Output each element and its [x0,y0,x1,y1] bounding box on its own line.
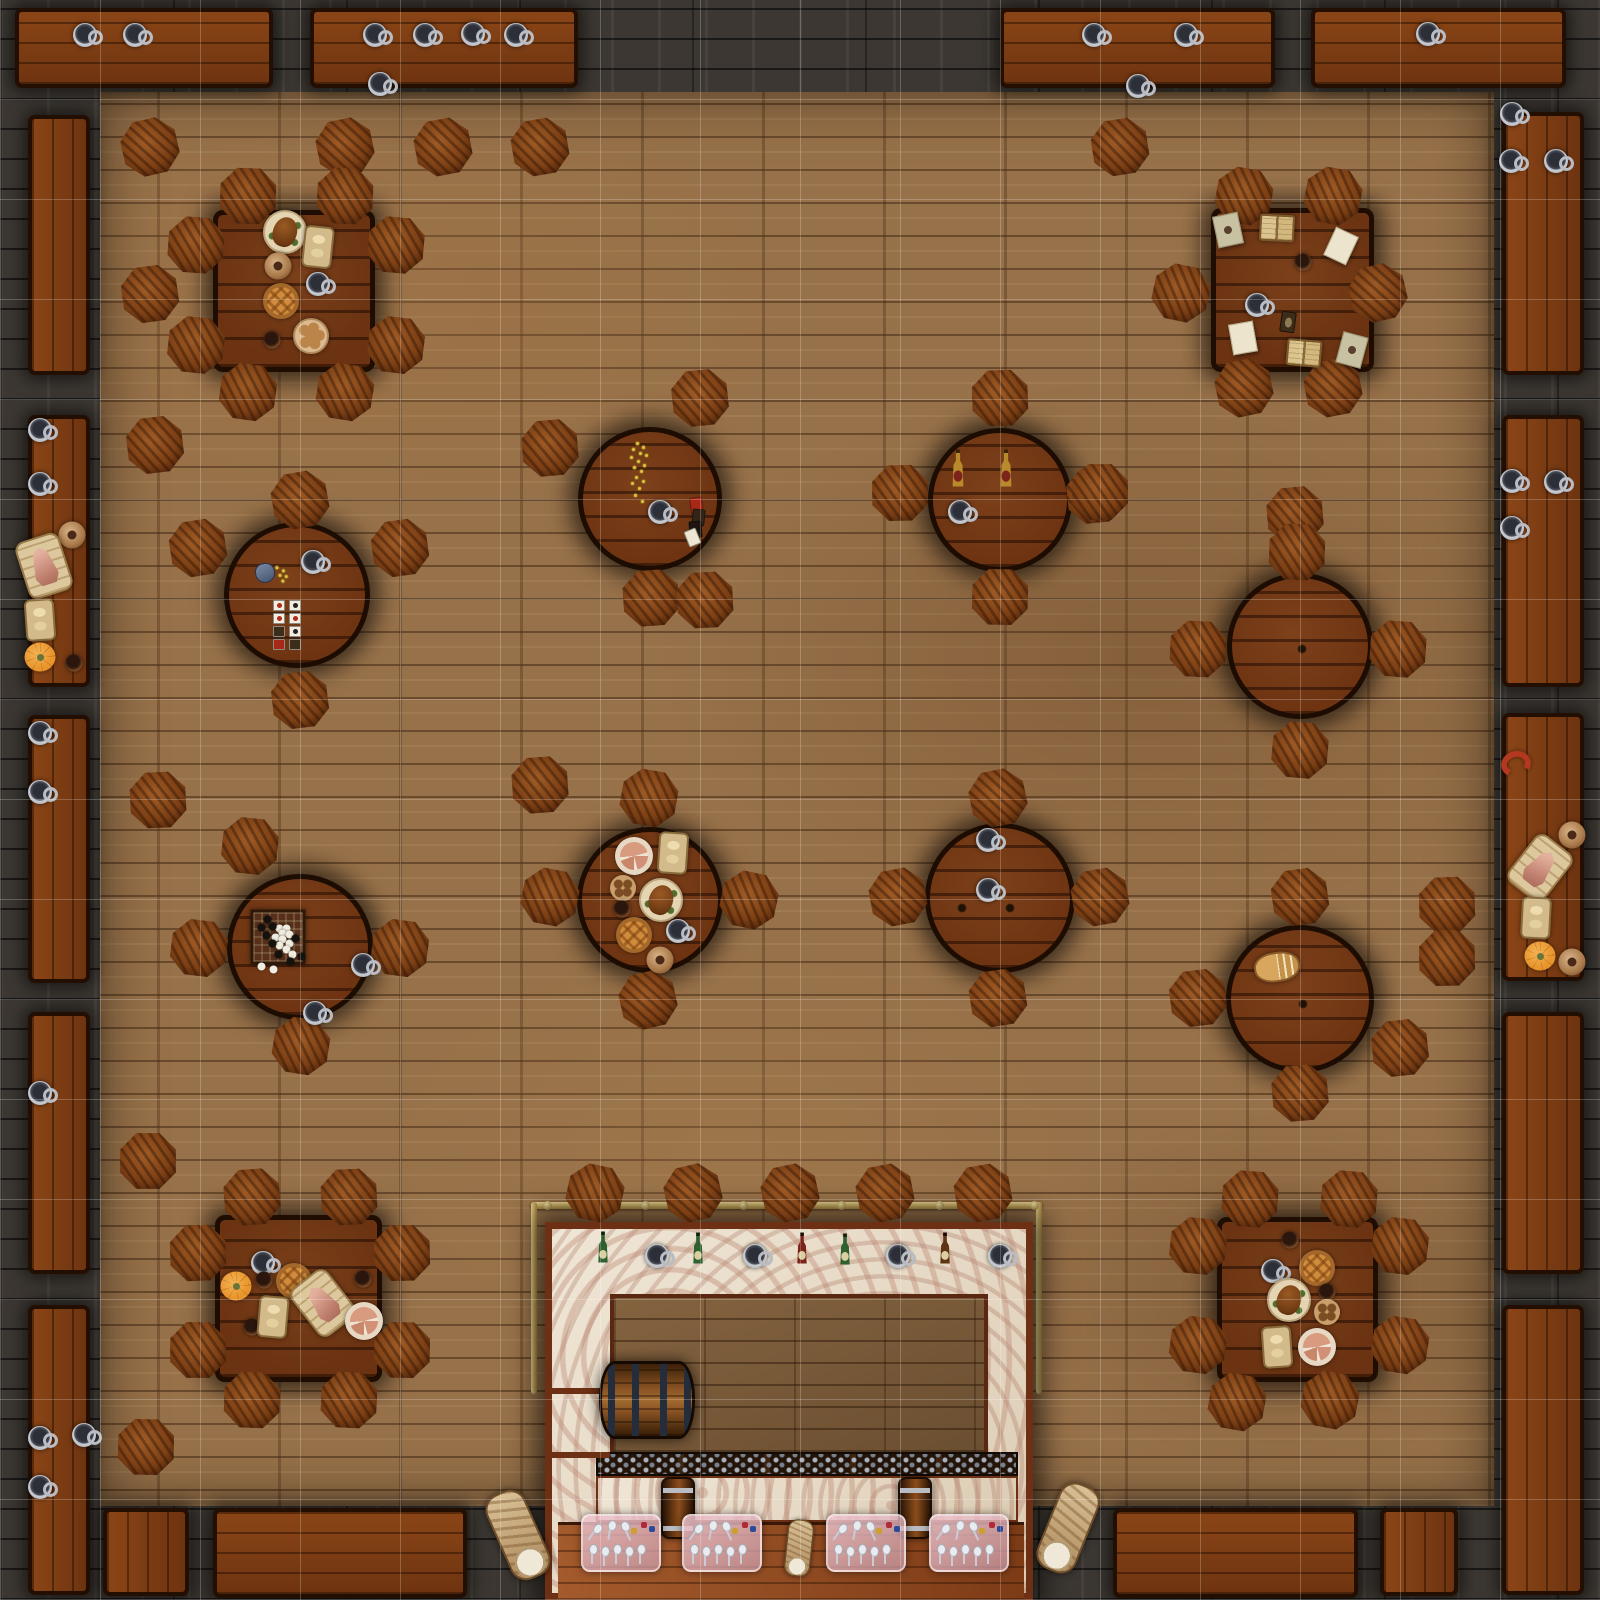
gem [989,1522,995,1528]
cup[interactable] [355,1271,372,1288]
brass-rail-post [935,1201,944,1210]
brass-rail-post [837,1201,846,1210]
spoon [870,1546,877,1566]
mug[interactable] [28,780,52,804]
mug[interactable] [1499,149,1523,173]
cookie-plate[interactable] [610,875,636,901]
card-spread[interactable] [273,600,303,650]
mug[interactable] [743,1244,767,1268]
cup[interactable] [1282,1232,1299,1249]
spoon [934,1522,951,1542]
mug[interactable] [976,878,1000,902]
mug[interactable] [301,550,325,574]
mug[interactable] [28,1475,52,1499]
playing-card[interactable] [1279,311,1297,334]
gold-coin [644,453,649,458]
gold-coin [641,479,646,484]
wall-bench [28,1305,90,1595]
lattice-pie[interactable] [616,917,652,953]
wall-bench [213,1508,467,1598]
playing-card [289,626,301,637]
lattice-pie[interactable] [263,283,299,319]
mug[interactable] [886,1244,910,1268]
wall-bench [1311,8,1566,88]
mug[interactable] [1126,74,1150,98]
bread-board[interactable] [256,1295,290,1339]
go-board[interactable] [251,910,306,965]
gold-coin [639,469,644,474]
gem [876,1528,882,1534]
mug[interactable] [28,1081,52,1105]
cup[interactable] [256,1272,273,1289]
gem [886,1522,892,1528]
sliced-pie-plate[interactable] [1298,1328,1336,1366]
wall-bench [28,715,90,983]
playing-card [273,626,285,637]
knot[interactable] [1006,904,1015,913]
wall-bench [1502,415,1584,687]
spoon [937,1544,944,1564]
mug[interactable] [123,23,147,47]
cup[interactable] [66,655,83,672]
playing-card [273,613,285,624]
beer-barrel[interactable] [599,1361,695,1439]
spoon [973,1546,980,1566]
mug[interactable] [368,72,392,96]
black-go-stone [298,953,306,961]
roast-platter[interactable] [263,210,307,254]
spoon [831,1522,848,1542]
wall-bench [1502,1305,1584,1595]
cutlery-tray[interactable] [929,1514,1009,1572]
gem [750,1526,756,1532]
spoon [858,1544,865,1564]
wall-bench [28,115,90,375]
brass-foot-rail [531,1202,537,1394]
mug[interactable] [1500,516,1524,540]
wall-bench [28,1012,90,1274]
gold-coin [635,441,640,446]
spoon [690,1544,697,1564]
mug[interactable] [988,1244,1012,1268]
gold-coin [642,463,647,468]
spoon [714,1544,721,1564]
bread-board[interactable] [657,831,690,875]
black-go-stone [275,951,283,959]
playing-card [273,639,285,650]
gold-coin [274,565,280,571]
bread-board[interactable] [301,225,335,270]
card-pile[interactable] [686,497,708,543]
bread-board[interactable] [1261,1325,1294,1369]
black-go-stone [292,935,300,943]
pitcher[interactable] [647,947,674,974]
mug[interactable] [1500,102,1524,126]
black-go-stone [287,958,295,966]
spoon [738,1544,745,1564]
spoon [625,1546,632,1566]
spoon [850,1520,860,1541]
mug[interactable] [1082,23,1106,47]
spoon [949,1546,956,1566]
mug[interactable] [72,1423,96,1447]
mug[interactable] [28,472,52,496]
mug[interactable] [28,418,52,442]
black-go-stone [258,924,266,932]
gem [997,1526,1003,1532]
gold-coin [636,459,641,464]
mug[interactable] [1544,470,1568,494]
mug[interactable] [948,500,972,524]
black-go-stone [269,923,277,931]
round-table [928,428,1072,572]
brass-rail-post [641,1201,650,1210]
open-book[interactable] [1259,214,1295,243]
gold-coin [633,493,638,498]
wall-bench [103,1508,189,1596]
mug[interactable] [28,721,52,745]
wall-bench [1380,1508,1458,1596]
gold-coin [629,455,634,460]
gold-coin [630,481,635,486]
coin-pouch[interactable] [253,558,290,586]
gold-coin [637,486,642,491]
playing-card [289,639,301,650]
bread-rolls-plate[interactable] [293,318,329,354]
white-go-stone [270,966,278,974]
brass-rail-post [543,1201,552,1210]
mug[interactable] [306,272,330,296]
mug[interactable] [413,23,437,47]
mug[interactable] [303,1001,327,1025]
cutlery-tray[interactable] [826,1514,906,1572]
white-go-stone [258,963,266,971]
wine-bottle-rack [596,1452,1018,1476]
gold-coin [638,451,643,456]
gem [649,1526,655,1532]
mug[interactable] [73,23,97,47]
spoon [834,1544,841,1564]
pumpkin[interactable] [221,1272,252,1301]
mug[interactable] [648,500,672,524]
mug[interactable] [504,23,528,47]
spoon [687,1522,704,1542]
mug[interactable] [461,22,485,46]
open-book[interactable] [1285,338,1322,368]
parchment[interactable] [1228,321,1258,356]
mug[interactable] [666,919,690,943]
brass-rail-post [739,1201,748,1210]
sliced-pie-plate[interactable] [345,1302,383,1340]
wall-bench [1502,1012,1584,1274]
gem [631,1528,637,1534]
coin-scatter[interactable] [624,439,650,505]
spoon [605,1520,615,1541]
gold-coin [632,465,637,470]
black-go-stone [263,932,271,940]
spoon [726,1546,733,1566]
lattice-pie[interactable] [1299,1250,1335,1286]
mug[interactable] [976,828,1000,852]
bread-board[interactable] [24,598,57,642]
spoon [702,1546,709,1566]
spoon [586,1522,603,1542]
black-go-stone [269,940,277,948]
cup[interactable] [264,332,281,349]
pumpkin[interactable] [25,643,56,672]
gem [732,1528,738,1534]
gem [979,1528,985,1534]
roast-platter[interactable] [639,878,683,922]
gold-coin [631,447,636,452]
pitcher[interactable] [1559,822,1586,849]
wall-bench [15,8,273,88]
pitcher[interactable] [265,253,292,280]
pitcher[interactable] [1559,949,1586,976]
gold-coin [641,445,646,450]
spoon [961,1544,968,1564]
mug[interactable] [351,953,375,977]
gem [641,1522,647,1528]
gem [742,1522,748,1528]
gold-coin [634,475,639,480]
playing-card [289,613,301,624]
mug[interactable] [363,23,387,47]
spoon [985,1544,992,1564]
spoon [637,1544,644,1564]
spoon [589,1544,596,1564]
tavern-battle-map [0,0,1600,1600]
pumpkin[interactable] [1525,942,1556,971]
playing-card [273,600,285,611]
mug[interactable] [1544,149,1568,173]
bar-shelf-divider [548,1452,610,1458]
spoon [706,1520,716,1541]
pitcher[interactable] [59,522,86,549]
brass-foot-rail [1036,1202,1042,1394]
sliced-pie-plate[interactable] [615,837,653,875]
knot[interactable] [1298,645,1307,654]
mug[interactable] [28,1426,52,1450]
cup[interactable] [1319,1284,1336,1301]
spoon [601,1546,608,1566]
spoon [846,1546,853,1566]
gold-coin [640,499,645,504]
mug[interactable] [1245,293,1269,317]
spoon [613,1544,620,1564]
spoon [953,1520,963,1541]
mug[interactable] [645,1244,669,1268]
mug[interactable] [1174,23,1198,47]
cutlery-tray[interactable] [581,1514,661,1572]
wall-bench [310,8,578,88]
gold-coin [277,573,283,579]
cutlery-tray[interactable] [682,1514,762,1572]
knot[interactable] [1299,1000,1308,1009]
mug[interactable] [1500,469,1524,493]
knot[interactable] [958,904,967,913]
cup[interactable] [614,901,631,918]
mug[interactable] [1416,22,1440,46]
spoon [882,1544,889,1564]
gem [894,1526,900,1532]
cup[interactable] [1295,254,1312,271]
bread-board[interactable] [1520,896,1552,940]
playing-card [289,600,301,611]
cookie-plate[interactable] [1314,1299,1340,1325]
roast-platter[interactable] [1267,1278,1311,1322]
wall-bench [1113,1508,1358,1598]
brass-rail-post [1030,1201,1039,1210]
